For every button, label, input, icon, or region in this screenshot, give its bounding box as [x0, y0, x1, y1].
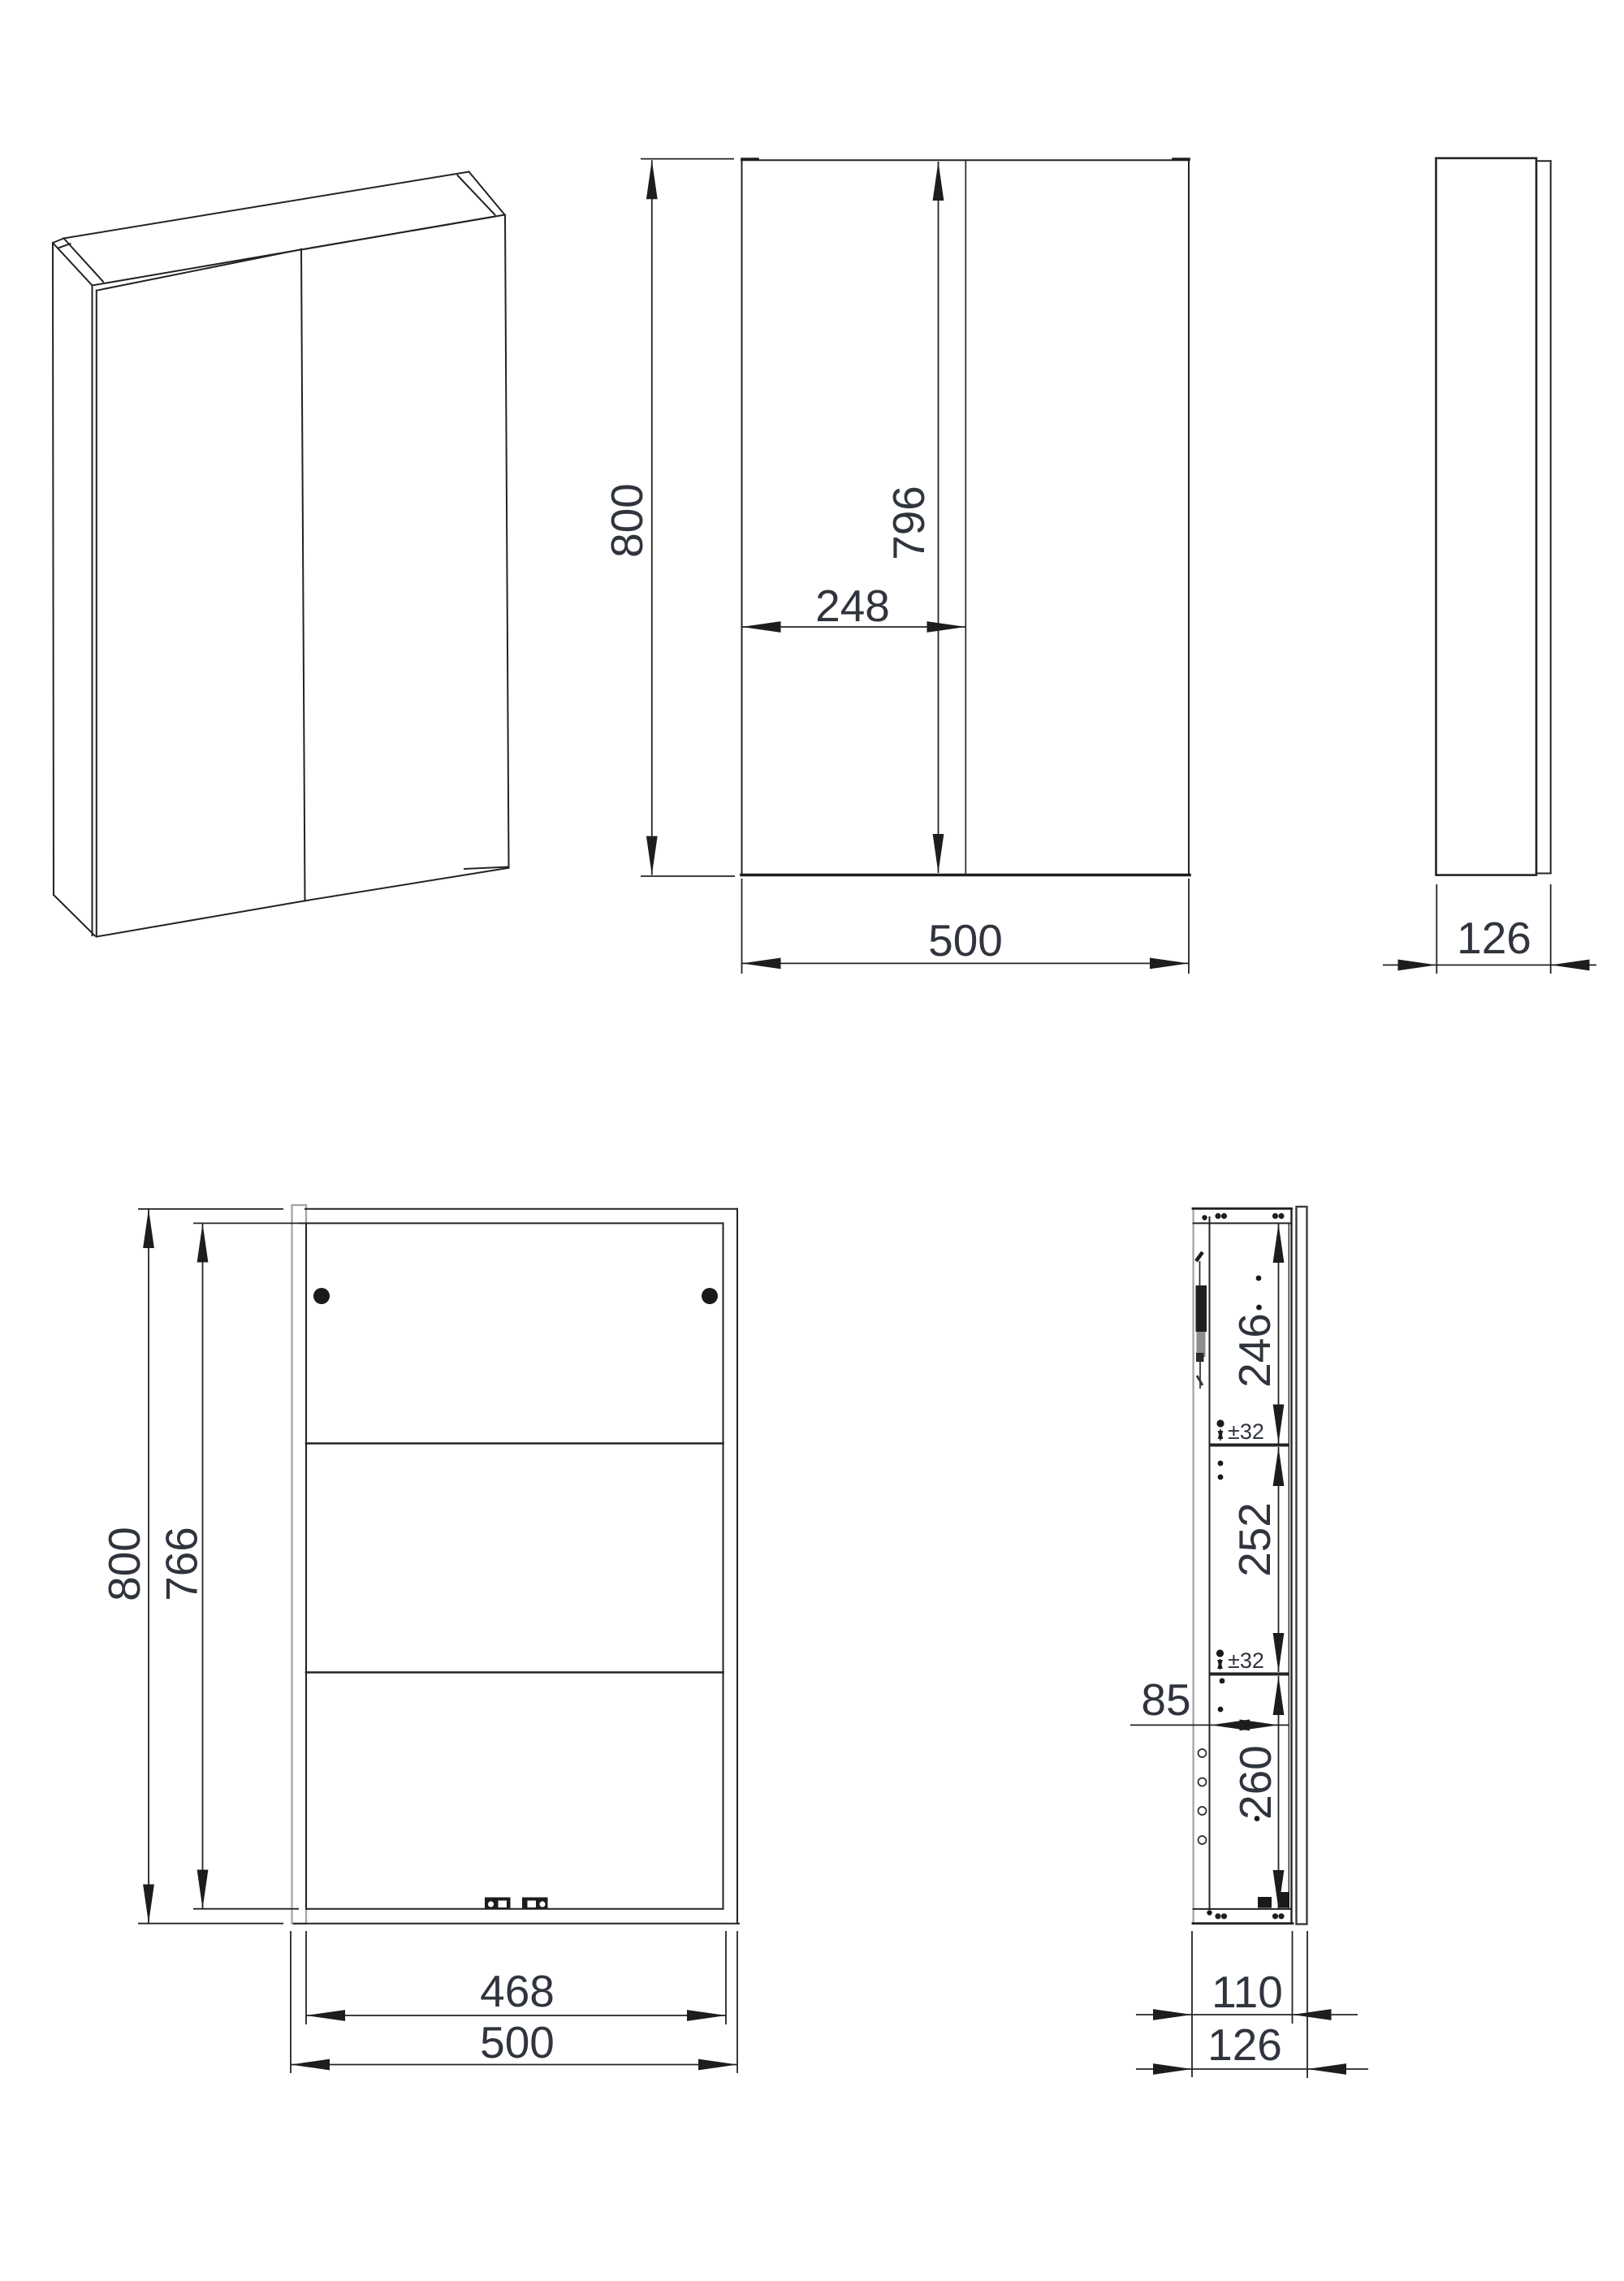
svg-text:500: 500: [928, 915, 1003, 966]
svg-text:796: 796: [883, 486, 934, 560]
svg-text:800: 800: [99, 1527, 149, 1601]
svg-text:126: 126: [1207, 2020, 1282, 2070]
svg-text:260: 260: [1230, 1745, 1281, 1820]
svg-text:248: 248: [815, 581, 890, 631]
svg-text:766: 766: [157, 1527, 207, 1601]
svg-text:246: 246: [1229, 1313, 1280, 1388]
svg-text:800: 800: [602, 483, 652, 558]
svg-text:468: 468: [480, 1966, 555, 2016]
svg-text:500: 500: [480, 2017, 555, 2067]
svg-text:110: 110: [1212, 1967, 1283, 2017]
svg-text:252: 252: [1229, 1502, 1280, 1577]
svg-text:85: 85: [1141, 1674, 1190, 1725]
svg-text:126: 126: [1457, 913, 1531, 963]
svg-text:±32: ±32: [1228, 1419, 1264, 1444]
svg-text:±32: ±32: [1228, 1648, 1264, 1673]
